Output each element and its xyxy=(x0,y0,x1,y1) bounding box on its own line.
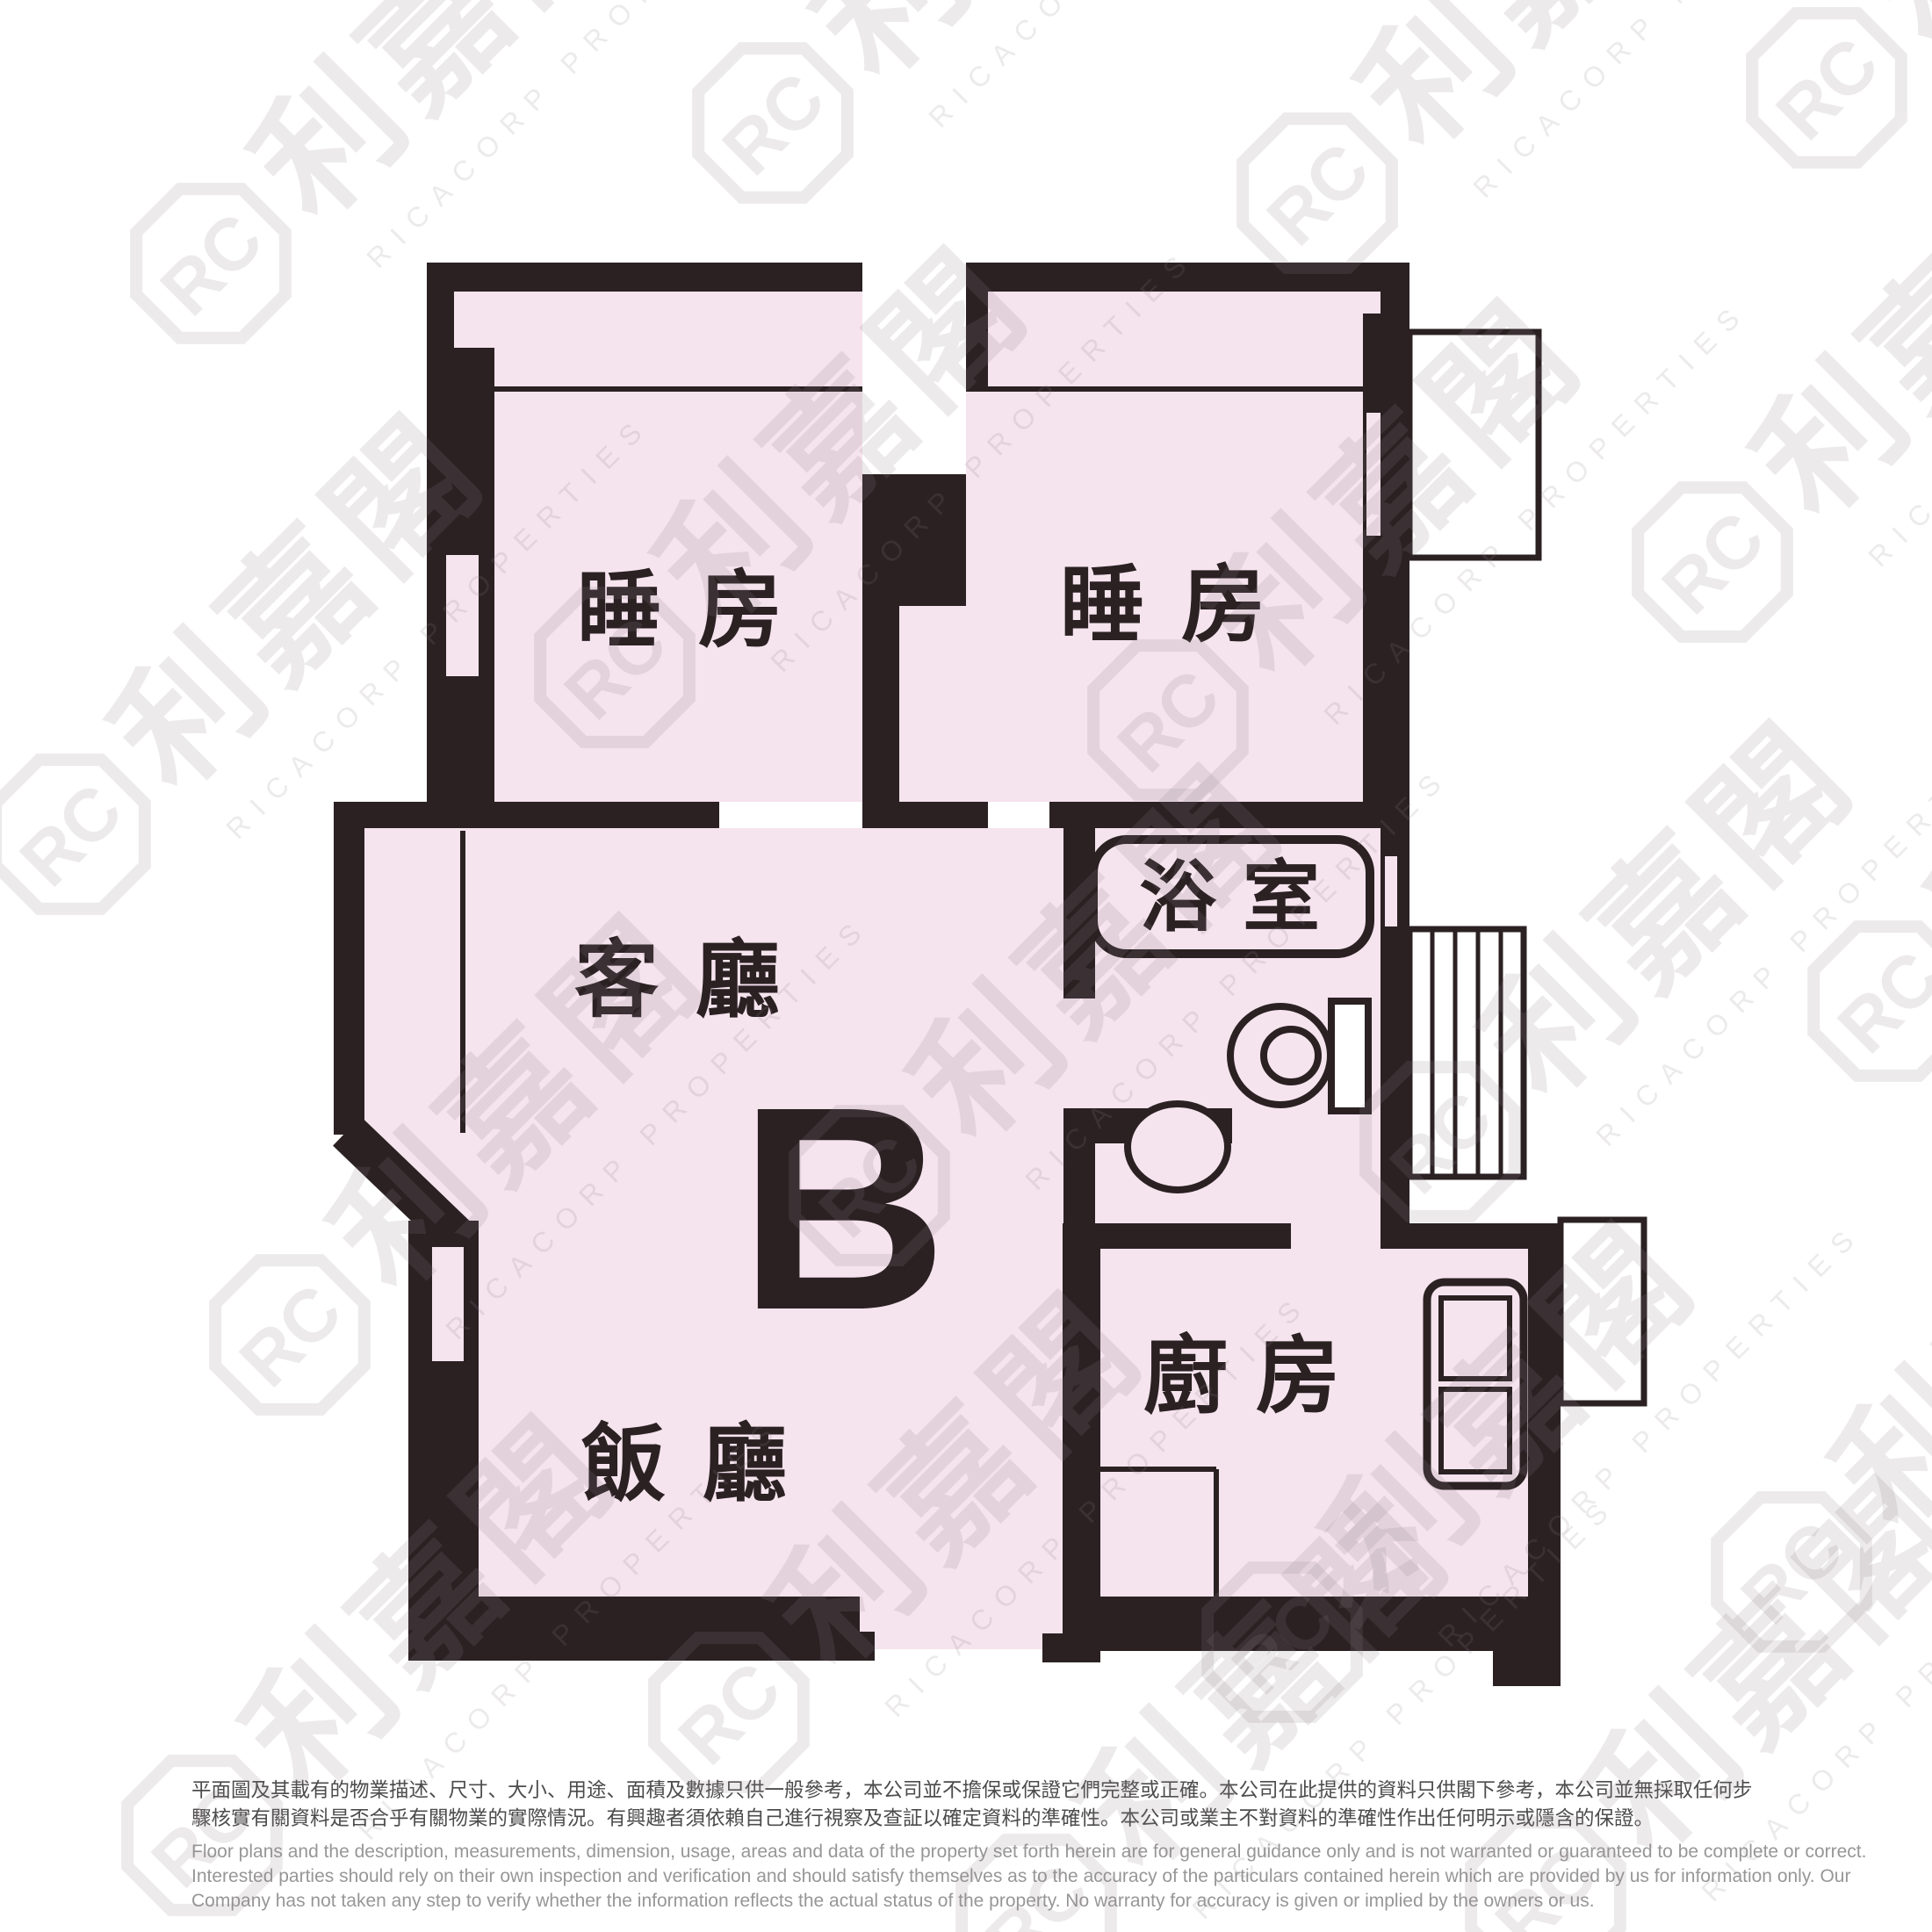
floor-plan-canvas: 睡房 睡房 客廳 飯廳 浴室 廚房 B 平面圖及其載有的物業描述、尺寸、大小、用… xyxy=(0,0,1932,1932)
bathroom-window xyxy=(1385,856,1397,926)
bedroom2-alcove-floor xyxy=(899,606,966,802)
toilet xyxy=(1230,1001,1368,1111)
sink xyxy=(1128,1104,1228,1190)
disclaimer-zh-line2: 驟核實有關資料是否合乎有關物業的實際情況。有興趣者須依賴自己進行視察及查証以確定… xyxy=(191,1807,1654,1829)
disclaimer-en-line3: Company has not taken any step to verify… xyxy=(191,1891,1595,1911)
